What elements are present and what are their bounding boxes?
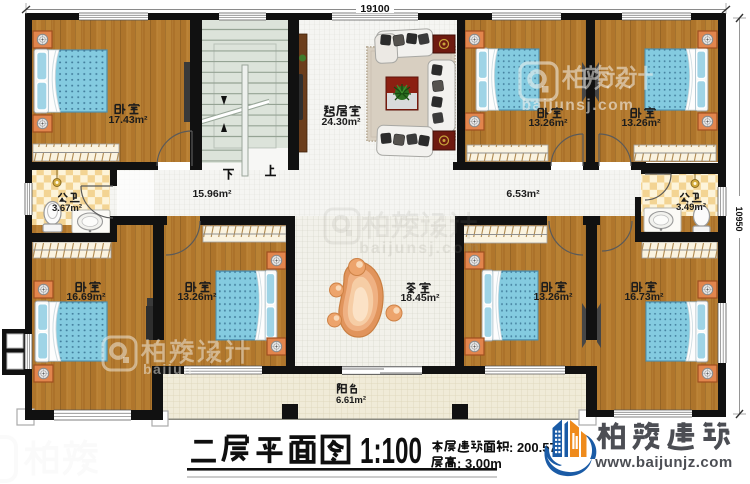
- svg-text:13.26m²: 13.26m²: [177, 291, 217, 303]
- svg-text:19100: 19100: [360, 3, 389, 15]
- svg-text:15.96m²: 15.96m²: [192, 188, 232, 200]
- svg-text:6.53m²: 6.53m²: [506, 188, 540, 200]
- svg-text:13.26m²: 13.26m²: [528, 117, 568, 129]
- svg-text:www.baijunjz.com: www.baijunjz.com: [594, 454, 732, 471]
- svg-text:16.69m²: 16.69m²: [66, 291, 106, 303]
- svg-text:13.26m²: 13.26m²: [621, 117, 661, 129]
- svg-text:24.30m²: 24.30m²: [321, 116, 361, 128]
- svg-text:3.67m²: 3.67m²: [52, 203, 82, 214]
- svg-text:1:100: 1:100: [360, 430, 422, 471]
- svg-text:18.45m²: 18.45m²: [400, 292, 440, 304]
- svg-text:13.26m²: 13.26m²: [533, 291, 573, 303]
- svg-text:6.61m²: 6.61m²: [336, 395, 366, 406]
- svg-text:16.73m²: 16.73m²: [624, 291, 664, 303]
- svg-text:3.49m²: 3.49m²: [676, 202, 706, 213]
- svg-text:: 200.57: : 200.57: [509, 440, 557, 455]
- svg-text:baijunsj.com: baijunsj.com: [359, 240, 481, 257]
- svg-text:10950: 10950: [734, 206, 744, 231]
- svg-text:17.43m²: 17.43m²: [108, 114, 148, 126]
- svg-text:baijun: baijun: [143, 361, 193, 377]
- svg-text:: 3.00m: : 3.00m: [457, 456, 502, 471]
